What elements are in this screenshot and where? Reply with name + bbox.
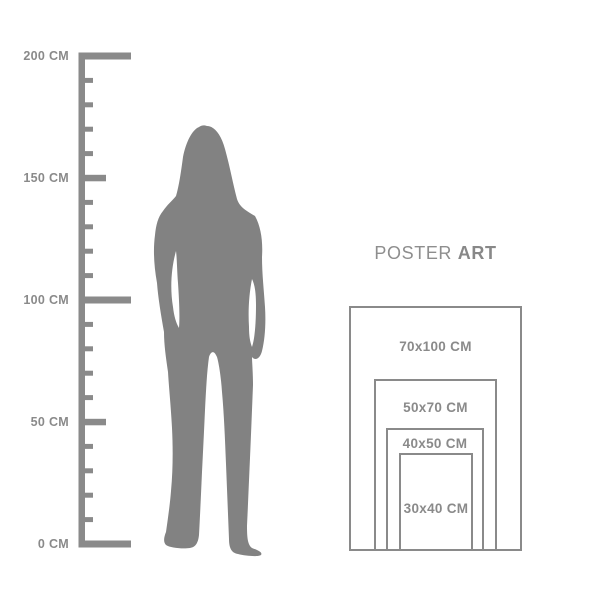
poster-size-label-70x100: 70x100 CM [349, 339, 522, 355]
ruler-label-150cm: 150 CM [9, 170, 69, 186]
ruler-label-50cm: 50 CM [9, 414, 69, 430]
ruler-tick-200 [79, 53, 132, 60]
brand-title-regular: POSTER [374, 243, 452, 263]
ruler-tick-50 [79, 419, 107, 426]
brand-title: POSTERART [349, 243, 522, 264]
ruler-tick-120 [79, 249, 94, 254]
ruler-tick-140 [79, 200, 94, 205]
ruler-label-0cm: 0 CM [9, 536, 69, 552]
poster-size-guide: 200 CM 150 CM 100 CM 50 CM 0 CM POSTERAR… [0, 0, 600, 600]
ruler-label-100cm: 100 CM [9, 292, 69, 308]
ruler-tick-60 [79, 395, 94, 400]
ruler-tick-110 [79, 273, 94, 278]
ruler-tick-130 [79, 224, 94, 229]
brand-title-bold: ART [458, 243, 497, 263]
ruler-tick-160 [79, 151, 94, 156]
ruler-tick-170 [79, 127, 94, 132]
poster-size-label-40x50: 40x50 CM [386, 436, 484, 452]
woman-silhouette-icon [154, 125, 265, 556]
poster-size-label-30x40: 30x40 CM [399, 501, 473, 517]
ruler-tick-190 [79, 78, 94, 83]
ruler-tick-0 [79, 541, 132, 548]
ruler-tick-90 [79, 322, 94, 327]
ruler-tick-10 [79, 517, 94, 522]
ruler-tick-20 [79, 493, 94, 498]
ruler-tick-70 [79, 371, 94, 376]
ruler-tick-30 [79, 468, 94, 473]
ruler-tick-100 [79, 297, 132, 304]
ruler-tick-180 [79, 102, 94, 107]
ruler-tick-40 [79, 444, 94, 449]
height-ruler [79, 53, 132, 548]
poster-size-label-50x70: 50x70 CM [374, 400, 497, 416]
ruler-tick-150 [79, 175, 107, 182]
ruler-label-200cm: 200 CM [9, 48, 69, 64]
ruler-tick-80 [79, 346, 94, 351]
